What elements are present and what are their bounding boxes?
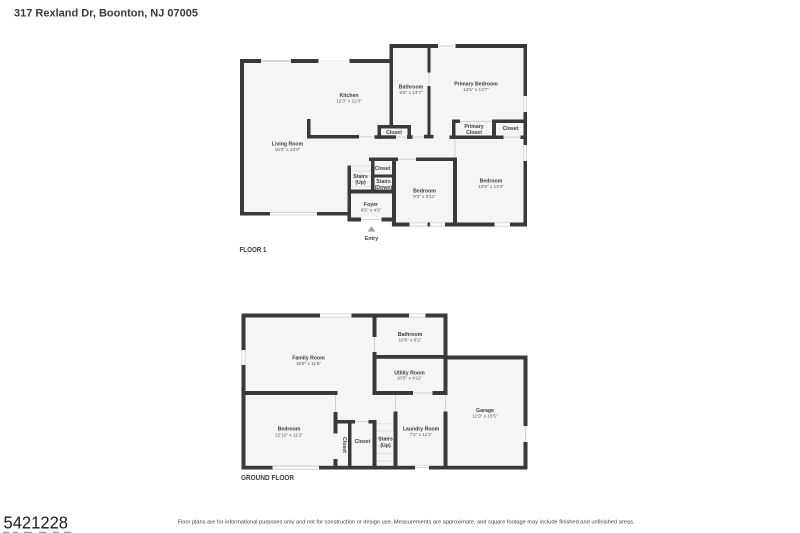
svg-text:Closet: Closet	[503, 126, 519, 132]
svg-text:Closet: Closet	[355, 439, 371, 445]
svg-text:Floor plans are for informatio: Floor plans are for informational purpos…	[178, 519, 635, 525]
svg-text:19'9" x 11'6": 19'9" x 11'6"	[296, 361, 322, 366]
svg-text:GROUND FLOOR: GROUND FLOOR	[241, 473, 295, 482]
svg-text:(Up): (Up)	[380, 443, 391, 449]
svg-text:FLOOR 1: FLOOR 1	[240, 245, 267, 254]
svg-text:14'5" x 13'7": 14'5" x 13'7"	[463, 87, 489, 92]
svg-text:12'3" x 11'3": 12'3" x 11'3"	[336, 98, 362, 103]
svg-text:Stairs: Stairs	[378, 437, 393, 443]
svg-text:16'2" x 23'0": 16'2" x 23'0"	[275, 147, 301, 152]
svg-text:11'9" x 16'5": 11'9" x 16'5"	[472, 414, 498, 419]
svg-text:(Up): (Up)	[355, 180, 366, 186]
svg-text:5421228: 5421228	[4, 513, 69, 533]
svg-text:Closet: Closet	[375, 166, 391, 172]
svg-text:10'9" x 13'3": 10'9" x 13'3"	[478, 184, 504, 189]
svg-text:Closet: Closet	[341, 437, 347, 453]
svg-text:Entry: Entry	[365, 236, 378, 242]
svg-text:5'6" x 13'7": 5'6" x 13'7"	[399, 90, 422, 95]
svg-text:12'10" x 11'2": 12'10" x 11'2"	[275, 433, 303, 438]
svg-text:7'2" x 11'2": 7'2" x 11'2"	[410, 432, 433, 437]
svg-text:10'6" x 6'2": 10'6" x 6'2"	[398, 338, 421, 343]
svg-text:317 Rexland Dr, Boonton, NJ 07: 317 Rexland Dr, Boonton, NJ 07005	[14, 8, 198, 20]
svg-text:6'5" x 4'2": 6'5" x 4'2"	[361, 208, 382, 213]
svg-text:9'3" x 9'11": 9'3" x 9'11"	[413, 194, 436, 199]
svg-text:Closet: Closet	[466, 130, 482, 136]
svg-text:10'5" x 4'11": 10'5" x 4'11"	[397, 376, 423, 381]
svg-text:(Down): (Down)	[375, 185, 393, 191]
svg-text:Closet: Closet	[386, 130, 402, 136]
